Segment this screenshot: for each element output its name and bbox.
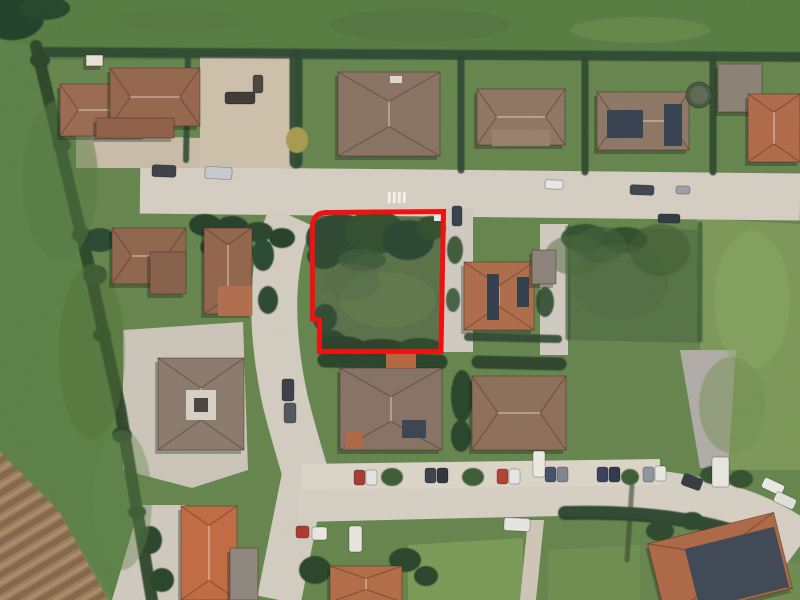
photo-grain-overlay xyxy=(0,0,800,600)
aerial-photo-viewport xyxy=(0,0,800,600)
satellite-image xyxy=(0,0,800,600)
